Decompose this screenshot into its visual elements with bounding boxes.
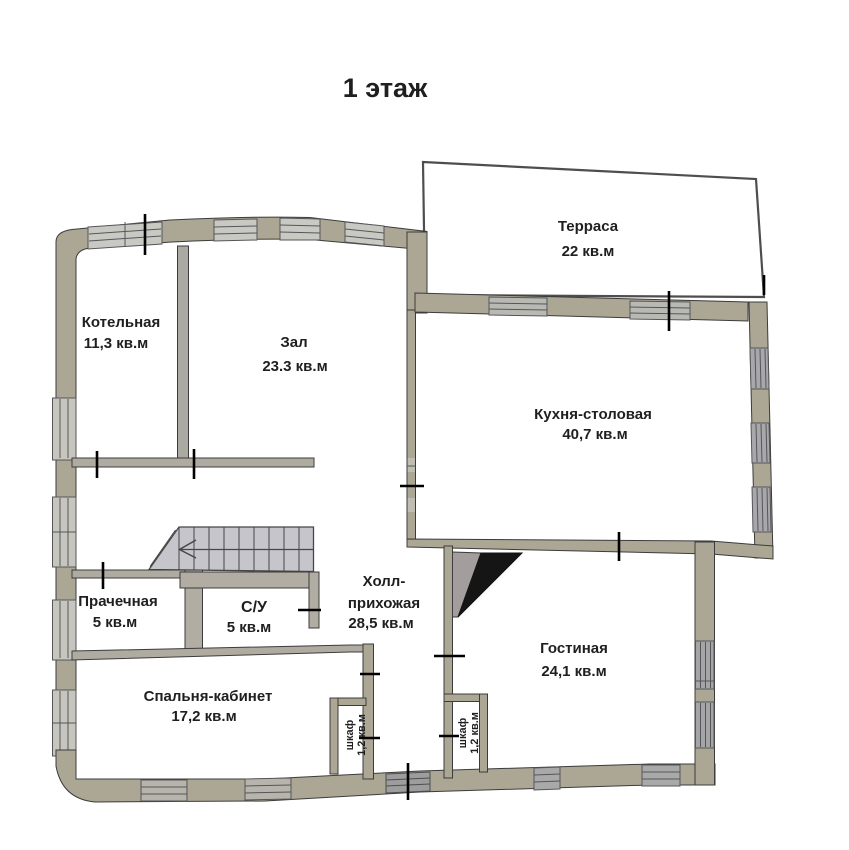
svg-text:40,7 кв.м: 40,7 кв.м bbox=[562, 426, 627, 443]
svg-text:17,2 кв.м: 17,2 кв.м bbox=[171, 708, 236, 725]
svg-text:Холл-: Холл- bbox=[363, 573, 406, 590]
svg-text:23.3 кв.м: 23.3 кв.м bbox=[262, 358, 327, 375]
svg-text:Кухня-столовая: Кухня-столовая bbox=[534, 406, 652, 423]
svg-text:Прачечная: Прачечная bbox=[78, 593, 157, 610]
svg-text:Терраса: Терраса bbox=[558, 218, 619, 235]
svg-text:28,5 кв.м: 28,5 кв.м bbox=[348, 615, 413, 632]
svg-text:22 кв.м: 22 кв.м bbox=[562, 243, 615, 260]
svg-text:Гостиная: Гостиная bbox=[540, 640, 608, 657]
svg-text:Котельная: Котельная bbox=[82, 314, 161, 331]
svg-text:Зал: Зал bbox=[280, 334, 307, 351]
svg-text:1,2 кв.м: 1,2 кв.м bbox=[469, 712, 481, 754]
svg-text:С/У: С/У bbox=[241, 599, 268, 616]
svg-text:5 кв.м: 5 кв.м bbox=[93, 614, 138, 631]
svg-text:шкаф: шкаф bbox=[457, 717, 469, 748]
svg-text:24,1 кв.м: 24,1 кв.м bbox=[541, 663, 606, 680]
svg-text:1,2 кв.м: 1,2 кв.м bbox=[356, 714, 368, 756]
svg-text:11,3 кв.м: 11,3 кв.м bbox=[84, 335, 149, 352]
svg-text:5 кв.м: 5 кв.м bbox=[227, 619, 272, 636]
svg-text:1 этаж: 1 этаж bbox=[343, 73, 428, 103]
svg-text:шкаф: шкаф bbox=[344, 719, 356, 750]
svg-text:прихожая: прихожая bbox=[348, 595, 420, 612]
svg-text:Спальня-кабинет: Спальня-кабинет bbox=[144, 688, 273, 705]
